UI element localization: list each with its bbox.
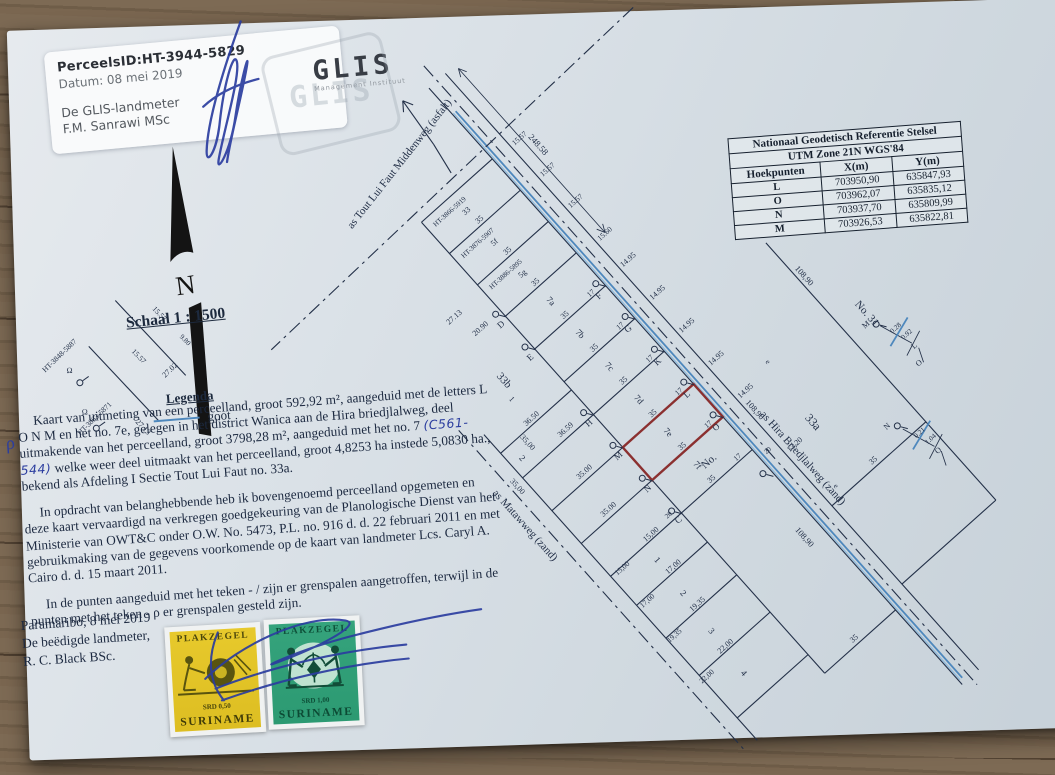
map-label: 108,90: [793, 525, 816, 549]
map-label: O: [710, 421, 722, 433]
map-line: [937, 451, 951, 465]
map-label: 17: [614, 320, 626, 332]
map-label: 17: [732, 451, 744, 463]
map-label: 15.57: [538, 160, 557, 178]
map-label: 19,35: [687, 595, 706, 614]
map-label: 17,00: [638, 591, 657, 609]
map-label: 35.00: [575, 462, 594, 481]
stamp-illustration-plow: [171, 644, 258, 701]
stamp-country: SURINAME: [279, 706, 354, 722]
revenue-stamp-green: PLAKZEGEL SRD 1,00 SURINAME: [263, 615, 364, 730]
map-label: 15.57: [566, 192, 585, 210]
map-label: 27.13: [444, 308, 463, 327]
boundary-marker-icon: [621, 312, 629, 320]
map-label: 17: [702, 418, 714, 430]
boundary-marker-icon: [893, 422, 901, 430]
map-label: 35,00: [518, 433, 537, 452]
revenue-stamp-yellow: PLAKZEGEL SRD 0,50 SURINAME: [164, 622, 266, 737]
map-label: e: [832, 482, 841, 491]
map-label: D: [495, 318, 507, 330]
map-label: 35: [705, 473, 717, 485]
map-label: F: [593, 290, 603, 301]
map-label: 17: [585, 287, 597, 299]
map-label: 20: [663, 509, 674, 520]
map-label: 14.95: [677, 316, 696, 335]
map-label: 1: [652, 555, 662, 565]
map-line: [737, 655, 808, 718]
map-label: 17,00: [663, 557, 682, 576]
map-line: [477, 222, 548, 285]
map-label: 0.28: [888, 321, 903, 335]
sheet-content: as Hira Briedjlalweg (zand)as Matawweg (…: [0, 0, 1055, 775]
map-label: 2: [517, 453, 527, 463]
map-line: [902, 500, 996, 584]
map-label: 7f: [691, 459, 703, 471]
map-line: [552, 447, 623, 510]
map-line: [597, 227, 605, 236]
map-line: [403, 97, 413, 108]
boundary-marker-icon: [759, 469, 767, 477]
photo-of-survey-map: { "sticker": { "perceel_id": "PerceelsID…: [0, 0, 1055, 758]
map-line: [900, 331, 926, 356]
map-label: 36.59: [556, 420, 575, 439]
map-label: No. 31: [852, 299, 881, 329]
map-label: HT-3876-5907: [460, 226, 497, 260]
map-line: [593, 351, 664, 414]
map-label: O: [914, 358, 924, 369]
map-label: 7a: [544, 295, 557, 308]
map-label: M: [860, 319, 871, 330]
map-label: 22,00: [716, 637, 735, 656]
map-line: [535, 286, 606, 349]
map-label: 35: [473, 213, 485, 225]
boundary-marker-icon: [650, 345, 658, 353]
map-line: [652, 417, 723, 480]
boundary-marker-stem: [646, 476, 653, 483]
map-label: 0.21: [912, 425, 927, 439]
boundary-marker-stem: [675, 509, 682, 516]
map-label: 14.95: [736, 381, 755, 400]
map-line: [398, 101, 438, 145]
map-label: 13,20: [785, 435, 804, 454]
map-line: [458, 66, 466, 75]
boundary-marker-icon: [638, 474, 646, 482]
map-label: 35: [588, 342, 600, 354]
map-label: G: [622, 322, 634, 334]
map-label: 15.57: [510, 129, 529, 147]
map-line: [923, 434, 949, 459]
boundary-marker-stem: [629, 315, 636, 322]
boundary-marker-icon: [709, 411, 717, 419]
map-label: 2: [678, 588, 688, 598]
boundary-marker-stem: [901, 424, 908, 431]
map-label: 15.60: [595, 224, 614, 242]
map-label: O: [933, 445, 943, 456]
boundary-marker-stem: [599, 282, 606, 289]
map-line: [611, 513, 682, 576]
map-label: 14.95: [648, 283, 667, 302]
map-label: M: [612, 449, 625, 462]
map-label: 35: [676, 440, 688, 452]
boundary-marker-icon: [77, 380, 83, 386]
coords-table-body: Nationaal Geodetisch Referentie Stelsel …: [728, 121, 968, 239]
map-line: [666, 575, 737, 638]
map-line: [458, 68, 605, 232]
map-label: 7d: [632, 393, 646, 407]
map-line: [903, 421, 935, 454]
map-label: 5g: [516, 268, 528, 280]
map-label: K: [652, 355, 664, 367]
boundary-marker-icon: [521, 343, 529, 351]
map-label: E: [525, 351, 536, 362]
boundary-marker-icon: [592, 279, 600, 287]
map-line: [484, 435, 757, 741]
map-label: 20: [762, 445, 773, 456]
map-label: 4: [739, 668, 750, 678]
map-label: 35: [617, 374, 629, 386]
map-label: 5f: [489, 236, 500, 247]
map-label: 15,00: [613, 559, 632, 577]
map-line: [681, 450, 752, 513]
map-label: N: [642, 482, 654, 494]
map-label: L: [681, 389, 692, 400]
map-label: 33: [460, 205, 472, 217]
map-line: [449, 190, 520, 253]
boundary-marker-stem: [528, 345, 535, 352]
map-label: HT-3886-5895: [488, 257, 525, 291]
map-label: 15.57: [130, 347, 148, 366]
map-label: N: [882, 421, 892, 432]
map-line: [914, 348, 928, 362]
map-line: [398, 101, 409, 112]
closing-block: Paramaribo, 8 mei 2019 De beëdigde landm…: [20, 608, 153, 671]
map-label: 35: [529, 276, 541, 288]
map-line: [766, 243, 996, 500]
map-label: 108,90: [793, 263, 816, 287]
map-line: [880, 318, 912, 351]
boundary-marker-icon: [609, 441, 617, 449]
handwritten-margin-mark: ρ: [3, 432, 16, 454]
map-line: [825, 610, 896, 673]
map-label: 35: [501, 245, 513, 257]
map-line: [505, 253, 576, 316]
map-line: [884, 317, 915, 346]
map-label: 19,35: [665, 626, 684, 644]
stamp-title: PLAKZEGEL: [276, 624, 349, 638]
boundary-marker-stem: [766, 472, 773, 479]
map-line: [832, 422, 926, 506]
stamp-illustration-coat-of-arms: [270, 637, 359, 695]
boundary-marker-stem: [616, 444, 623, 451]
stamp-country: SURINAME: [180, 712, 255, 728]
map-label: 33b: [494, 370, 514, 391]
boundary-marker-icon: [872, 320, 880, 328]
map-line: [637, 542, 708, 605]
map-label: HT-3848-5887: [40, 337, 78, 374]
map-label: 35: [559, 309, 571, 321]
map-label: 36.50: [522, 409, 541, 428]
map-label: H: [583, 417, 595, 429]
map-label: 248.58: [526, 132, 550, 157]
boundary-marker-stem: [499, 312, 506, 319]
boundary-marker-stem: [83, 376, 89, 380]
map-label: 35,00: [508, 477, 527, 496]
map-label: 108,90: [744, 397, 767, 421]
map-label: No.: [699, 451, 719, 471]
map-label: e: [764, 357, 773, 366]
boundary-marker-stem: [687, 380, 694, 387]
map-label: L: [909, 341, 919, 351]
stamp-title: PLAKZEGEL: [176, 631, 249, 645]
map-label: 1: [507, 395, 516, 404]
map-line: [421, 159, 492, 222]
boundary-marker-icon: [579, 408, 587, 416]
map-line: [564, 318, 635, 381]
map-label: 7e: [662, 426, 675, 439]
map-label: 3: [706, 626, 717, 636]
survey-map-sheet: as Hira Briedjlalweg (zand)as Matawweg (…: [7, 0, 1055, 760]
map-label: 14.95: [706, 349, 725, 368]
map-label: 7c: [603, 360, 616, 373]
map-line: [581, 480, 652, 543]
map-label: 15,00: [641, 525, 660, 544]
boundary-marker-stem: [658, 348, 665, 355]
map-label: Ω: [66, 366, 72, 375]
map-label: 35.00: [599, 500, 618, 519]
map-label: 20.90: [471, 319, 490, 338]
map-line: [623, 384, 694, 447]
map-line: [501, 390, 572, 453]
map-label: 14.95: [618, 250, 637, 269]
map-label: 1.04: [923, 432, 938, 446]
highlighted-parcel-7e: [623, 384, 723, 480]
boundary-marker-stem: [587, 411, 594, 418]
map-line: [906, 421, 937, 450]
map-label: HT-3866-5919: [432, 195, 469, 229]
map-label: 17: [644, 353, 656, 365]
map-line: [600, 224, 608, 233]
map-label: 33a: [802, 411, 824, 434]
map-line: [455, 68, 463, 77]
description-text: Kaart van uitmeting van een perceelland,…: [17, 381, 510, 641]
boundary-marker-stem: [880, 322, 887, 329]
map-line: [429, 144, 455, 173]
stamp-value: SRD 1,00: [301, 695, 329, 704]
map-label: 35: [867, 454, 879, 466]
north-arrow-n: N: [174, 269, 197, 301]
map-label: 17: [673, 385, 685, 397]
map-label: 7b: [574, 327, 588, 341]
map-label: 22,00: [697, 667, 716, 685]
boundary-marker-icon: [491, 310, 499, 318]
map-label: 0.92: [899, 327, 914, 341]
boundary-marker-icon: [667, 507, 675, 515]
coordinates-table: Nationaal Geodetisch Referentie Stelsel …: [727, 121, 968, 240]
boundary-marker-icon: [680, 378, 688, 386]
map-label: as Hira Briedjlalweg (zand): [758, 409, 848, 508]
map-line: [523, 415, 594, 478]
map-label: 35: [647, 407, 659, 419]
stamp-value: SRD 0,50: [203, 702, 231, 712]
boundary-marker-stem: [717, 413, 724, 420]
map-line: [699, 612, 770, 675]
map-label: 35: [848, 632, 860, 644]
map-label: C: [673, 514, 684, 525]
